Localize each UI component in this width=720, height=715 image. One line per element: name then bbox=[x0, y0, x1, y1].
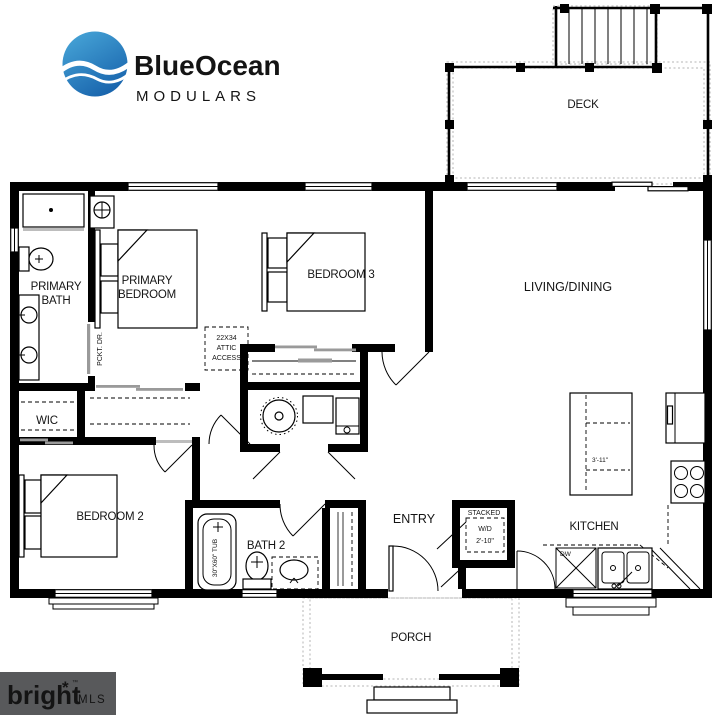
pillow bbox=[25, 516, 41, 549]
deck-outline bbox=[447, 62, 710, 184]
deck: DECK bbox=[445, 4, 712, 184]
blue-ocean-modulars-logo: Blue Ocean MODULARS bbox=[59, 32, 281, 106]
porch-step bbox=[374, 687, 450, 700]
entry-closet bbox=[338, 512, 352, 586]
porch-post bbox=[303, 668, 322, 687]
corner-cabinet bbox=[650, 548, 690, 589]
kitchen-island-icon: 3'-11" bbox=[570, 393, 632, 495]
double-vanity-icon bbox=[19, 295, 39, 380]
door-swing-kitchen bbox=[517, 551, 555, 589]
bathtub-icon: 30"X60" TUB bbox=[198, 514, 236, 590]
exterior-step bbox=[573, 607, 649, 615]
hall-closet bbox=[90, 398, 190, 424]
living-dining-label: LIVING/DINING bbox=[524, 280, 612, 294]
room-entry: ENTRY STACKED W/D 2'-10" bbox=[393, 510, 504, 552]
toilet-icon bbox=[243, 552, 271, 589]
room-kitchen: 3'-11" DW KITCHEN bbox=[543, 393, 705, 589]
porch-rail bbox=[322, 674, 383, 680]
door-swing-bedroom2 bbox=[154, 440, 192, 472]
bedroom3-closet bbox=[252, 359, 356, 375]
wd-label-2: W/D bbox=[478, 526, 492, 533]
bedroom2-label: BEDROOM 2 bbox=[76, 511, 143, 523]
porch-label: PORCH bbox=[391, 632, 432, 644]
logo-word-modulars: MODULARS bbox=[136, 88, 261, 105]
porch-post bbox=[500, 668, 519, 687]
window bbox=[704, 240, 712, 330]
attic-label-3: ACCESS bbox=[212, 355, 241, 362]
bypass-door bbox=[275, 346, 356, 352]
pillow bbox=[101, 281, 118, 313]
attic-label-1: 22X34 bbox=[216, 335, 236, 342]
floor-plan-svg: DECK PORCH bbox=[0, 0, 720, 715]
logo-word-ocean: Ocean bbox=[195, 50, 281, 81]
deck-label: DECK bbox=[567, 99, 599, 111]
shower-icon bbox=[23, 194, 84, 231]
utility-double-doors bbox=[253, 452, 355, 479]
wd-label-1: STACKED bbox=[468, 510, 501, 517]
door-swing-bedroom3 bbox=[382, 352, 429, 385]
room-bedroom3: BEDROOM 3 bbox=[252, 233, 375, 374]
window bbox=[242, 590, 277, 598]
deck-stairs-icon bbox=[553, 6, 712, 66]
bath2-label: BATH 2 bbox=[247, 540, 285, 552]
ceiling-light-icon bbox=[90, 196, 114, 228]
star-icon: * bbox=[62, 678, 69, 697]
room-primary-bath: PRIMARY BATH bbox=[19, 194, 84, 380]
window bbox=[49, 590, 158, 609]
primary-bedroom-label-1: PRIMARY bbox=[122, 275, 173, 287]
wd-label-3: 2'-10" bbox=[476, 538, 494, 545]
tub-label: 30"X60" TUB bbox=[212, 539, 219, 577]
watermark-tm: ™ bbox=[72, 679, 78, 686]
toilet-icon bbox=[19, 247, 53, 271]
watermark-brand: bright bbox=[7, 680, 81, 710]
deck-outline-inner bbox=[453, 68, 704, 178]
pocket-door: PCKT. DR. bbox=[87, 324, 104, 374]
range-icon bbox=[671, 461, 705, 503]
deck-posts bbox=[445, 4, 712, 184]
bedroom3-label: BEDROOM 3 bbox=[307, 269, 374, 281]
room-bath2: 30"X60" TUB BATH 2 bbox=[198, 514, 318, 590]
porch-rail bbox=[439, 674, 500, 680]
window bbox=[566, 590, 656, 615]
window bbox=[128, 183, 218, 191]
primary-bath-label-2: BATH bbox=[41, 295, 70, 307]
window-sill bbox=[53, 604, 154, 609]
pillow bbox=[25, 480, 41, 513]
pillow bbox=[268, 272, 287, 302]
room-bedroom2: BEDROOM 2 bbox=[19, 475, 144, 557]
kitchen-label: KITCHEN bbox=[569, 521, 618, 533]
logo-word-blue: Blue bbox=[134, 50, 195, 81]
utility-room bbox=[261, 396, 360, 435]
pillow bbox=[101, 244, 118, 276]
primary-bath-label-1: PRIMARY bbox=[31, 281, 82, 293]
washer-dryer-closet: STACKED W/D 2'-10" bbox=[466, 510, 504, 552]
primary-bedroom-label-2: BEDROOM bbox=[118, 289, 176, 301]
pillow bbox=[268, 238, 287, 268]
window bbox=[467, 183, 557, 191]
corner-cabinet bbox=[660, 548, 700, 589]
window-sill bbox=[49, 598, 158, 604]
refrigerator-icon bbox=[666, 393, 705, 443]
dishwasher-icon: DW bbox=[556, 548, 596, 588]
wic-label: WIC bbox=[36, 415, 58, 427]
room-wic: WIC bbox=[21, 402, 75, 430]
pocket-door-label: PCKT. DR. bbox=[97, 332, 104, 366]
porch-step bbox=[367, 700, 457, 713]
porch: PORCH bbox=[303, 598, 519, 713]
watermark-suffix: MLS bbox=[78, 694, 106, 706]
kitchen-sink-icon bbox=[598, 548, 652, 589]
attic-label-2: ATTIC bbox=[217, 345, 237, 352]
bypass-door bbox=[96, 385, 183, 391]
window bbox=[11, 228, 19, 252]
island-dimension: 3'-11" bbox=[592, 457, 609, 464]
vanity-sink-icon bbox=[272, 557, 318, 589]
mls-watermark: bright * ™ MLS bbox=[0, 672, 116, 715]
entry-label: ENTRY bbox=[393, 512, 436, 526]
door-swing-front-door bbox=[389, 546, 438, 591]
room-primary-bedroom: PRIMARY BEDROOM bbox=[90, 196, 197, 328]
window bbox=[305, 183, 372, 191]
washer-unit-icon bbox=[336, 398, 359, 434]
dishwasher-label: DW bbox=[560, 551, 572, 558]
hvac-unit-icon bbox=[303, 396, 333, 423]
water-heater-icon bbox=[261, 398, 298, 435]
door-swing-bath2 bbox=[280, 504, 325, 536]
exterior-step bbox=[566, 598, 656, 607]
